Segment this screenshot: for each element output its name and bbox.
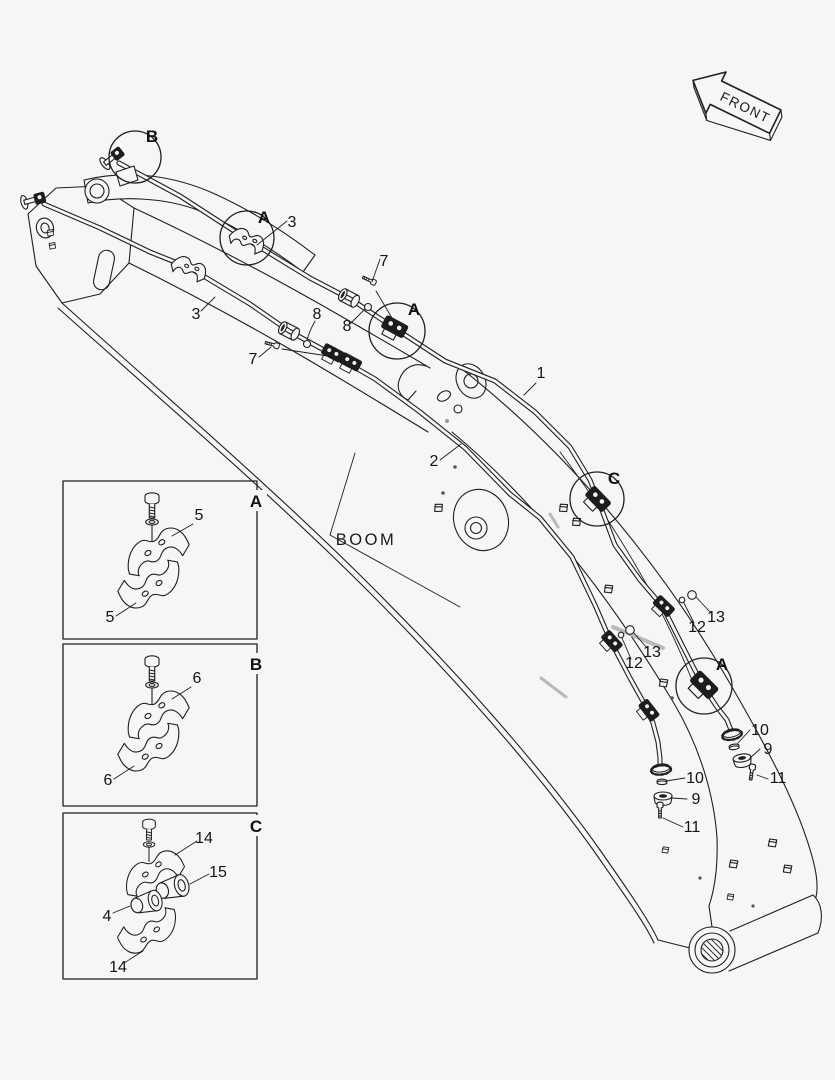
box-c-part-15: 15: [209, 864, 227, 881]
callout-3-mid: 3: [192, 306, 201, 323]
callout-7-top: 7: [380, 253, 389, 270]
bolt-7-left: [265, 340, 280, 349]
clamp-half-5-bottom: [113, 558, 186, 612]
callout-8-right: 8: [343, 318, 352, 335]
front-arrow: FRONT: [680, 61, 789, 150]
clamp-block-c: [581, 486, 611, 516]
clamp-half-6-top: [121, 687, 194, 741]
ring-8-left: [304, 341, 311, 348]
callout-12-lower: 12: [625, 655, 643, 672]
callout-10-right: 10: [751, 722, 769, 739]
marker-letter-b: B: [146, 127, 158, 146]
callout-7-left: 7: [249, 351, 258, 368]
clamp-half-5-top: [121, 524, 194, 578]
box-a-part-bottom: 5: [106, 609, 115, 626]
callout-9-left: 9: [692, 791, 701, 808]
washer-10-right: [729, 744, 740, 751]
box-a-part-top: 5: [195, 507, 204, 524]
clamp-block-elbow: [634, 699, 659, 725]
marker-letter-a2: A: [408, 300, 420, 319]
clamp-half-6-bottom: [113, 721, 186, 775]
boom-body-outline: [28, 175, 821, 973]
box-b-part-top: 6: [193, 670, 202, 687]
callout-10-left: 10: [686, 770, 704, 787]
box-c-part-14-bottom: 14: [109, 959, 127, 976]
ring-8-right: [365, 304, 372, 311]
clamp-saddle-1: [169, 252, 210, 286]
pipe-lower-run: [44, 204, 660, 770]
callout-1: 1: [537, 365, 546, 382]
box-c-letter: C: [250, 817, 262, 836]
text-layer: BOOM B A A C A 3 3 7 8 8 7 1 2 12 13 12 …: [103, 127, 787, 976]
bolt-11-right: [748, 764, 756, 781]
flange-left: [650, 763, 671, 776]
callout-8-left: 8: [313, 306, 322, 323]
marker-letter-a3: A: [716, 655, 728, 674]
boom-piping-diagram: FRONT: [0, 0, 835, 1080]
ring-12-upper: [679, 597, 685, 603]
marker-letter-a1: A: [258, 208, 270, 227]
detail-markers: [109, 131, 732, 714]
box-b-part-bottom: 6: [104, 772, 113, 789]
bolt-7-top: [362, 275, 377, 286]
washer-10-left: [657, 779, 667, 784]
detail-box-c: [63, 813, 267, 979]
ring-13-lower: [626, 626, 635, 635]
box-c-part-4: 4: [103, 908, 112, 925]
boom-label: BOOM: [336, 531, 396, 549]
box-c-part-14-top: 14: [195, 830, 213, 847]
box-a-letter: A: [250, 492, 262, 511]
clamp-half-14-bottom: [113, 906, 182, 957]
callout-11-left: 11: [684, 819, 701, 836]
parts-diagram-page: FRONT: [0, 0, 835, 1080]
detail-box-a: [63, 481, 267, 639]
callout-13-lower: 13: [643, 644, 661, 661]
callout-11-right: 11: [770, 770, 787, 787]
callout-13-upper: 13: [707, 609, 725, 626]
flange-right: [721, 727, 743, 742]
ring-12-lower: [618, 632, 624, 638]
callout-9-right: 9: [764, 741, 773, 758]
bolt-11-left: [657, 802, 663, 818]
leader-lines: [201, 221, 768, 827]
marker-letter-c: C: [608, 469, 620, 488]
callout-3-top: 3: [288, 214, 297, 231]
callout-2: 2: [430, 453, 439, 470]
callout-12-upper: 12: [688, 619, 706, 636]
pipe-upper-run: [119, 163, 732, 737]
detail-box-b: [63, 644, 267, 806]
box-b-letter: B: [250, 655, 262, 674]
ring-13-upper: [688, 591, 697, 600]
